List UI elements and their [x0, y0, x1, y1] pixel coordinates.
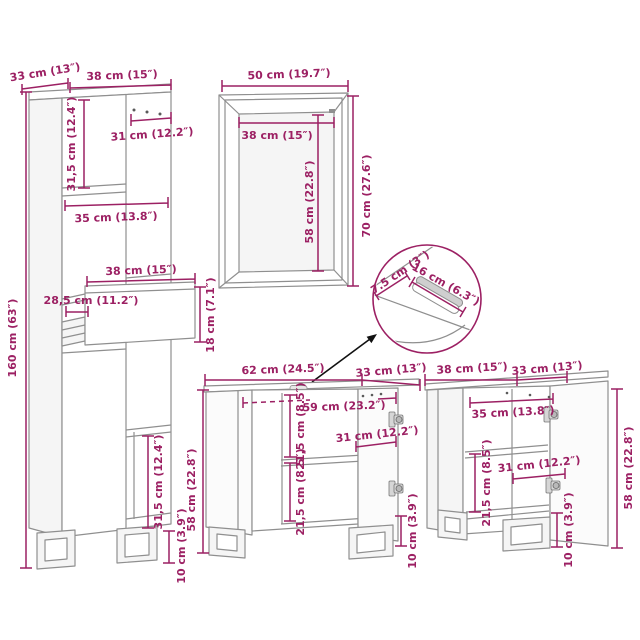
dim-tall-drawer-height: 18 cm (7.1″) [204, 277, 217, 352]
side-cabinet: 38 cm (15″) 33 cm (13″) 35 cm (13.8″) 21… [425, 359, 635, 568]
dim-tall-depth: 33 cm (13″) [9, 60, 81, 84]
dim-side-height: 58 cm (22.8″) [622, 426, 635, 509]
diagram-canvas: 33 cm (13″) 38 cm (15″) 31 cm (12.2″) 31… [0, 0, 640, 640]
dim-side-width: 38 cm (15″) [436, 360, 508, 377]
dim-tall-width: 38 cm (15″) [86, 68, 158, 83]
mirror-mount [329, 109, 335, 113]
dim-vanity-width: 62 cm (24.5″) [241, 361, 324, 377]
dim-mirror-width: 50 cm (19.7″) [247, 66, 330, 82]
dim-vanity-lower-compartment: 21,5 cm (8.5″) [294, 448, 307, 535]
dim-side-leg-height: 10 cm (3.9″) [562, 492, 575, 567]
dim-tall-height: 160 cm (63″) [6, 299, 19, 378]
tall-cabinet-side-panel [29, 98, 62, 537]
dim-vanity-height: 58 cm (22.8″) [185, 448, 198, 531]
product-dimension-diagram: 33 cm (13″) 38 cm (15″) 31 cm (12.2″) 31… [0, 0, 640, 640]
vanity-cabinet: 62 cm (24.5″) 33 cm (13″) 59 cm (23.2″) … [185, 361, 427, 569]
dim-mirror-glass-height: 58 cm (22.8″) [303, 160, 316, 243]
dim-mirror-height: 70 cm (27.6″) [360, 154, 373, 237]
dim-vanity-depth: 33 cm (13″) [355, 361, 427, 380]
callout-arrowhead [367, 334, 377, 343]
dim-tall-upper-compartment: 31,5 cm (12.4″) [65, 97, 78, 192]
dim-tall-drawer-depth: 28,5 cm (11.2″) [44, 294, 139, 307]
drawer-rail [62, 317, 85, 346]
dim-side-compartment: 21,5 cm (8.5″) [480, 439, 493, 526]
dim-mirror-glass-width: 38 cm (15″) [241, 129, 312, 142]
dim-tall-drawer-width: 38 cm (15″) [105, 263, 177, 278]
dim-tall-lower-compartment: 31,5 cm (12.4″) [152, 435, 165, 530]
vanity-left-door [206, 390, 252, 535]
dim-vanity-leg-height: 10 cm (3.9″) [406, 493, 419, 568]
mirror: 50 cm (19.7″) 38 cm (15″) 58 cm (22.8″) … [219, 66, 373, 288]
